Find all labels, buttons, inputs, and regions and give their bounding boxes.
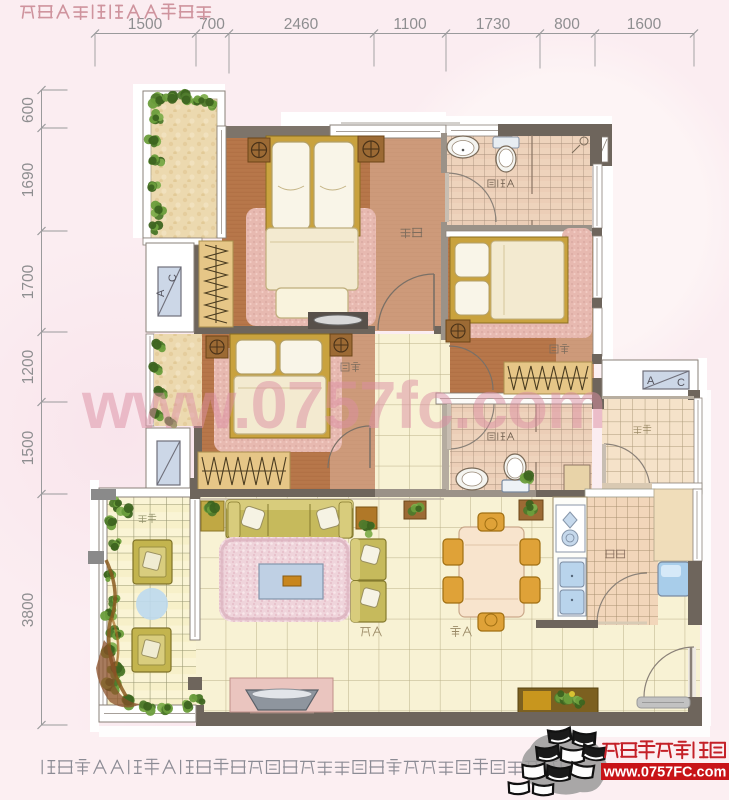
svg-text:1200: 1200 [20,349,37,384]
svg-text:A: A [155,289,167,297]
svg-text:3800: 3800 [20,592,37,627]
svg-text:1690: 1690 [20,162,37,197]
svg-text:C: C [677,377,685,389]
svg-text:1730: 1730 [476,16,511,33]
svg-text:1700: 1700 [20,264,37,299]
svg-text:A: A [647,375,655,387]
svg-text:1100: 1100 [393,16,427,33]
svg-text:2460: 2460 [284,16,319,33]
svg-text:800: 800 [554,16,580,33]
svg-text:1600: 1600 [627,16,662,33]
svg-text:www.0757FC.com: www.0757FC.com [603,765,727,781]
svg-text:1500: 1500 [20,430,37,465]
svg-text:www.0757fc.com: www.0757fc.com [81,368,605,443]
svg-text:600: 600 [20,97,37,123]
svg-text:C: C [167,274,179,282]
